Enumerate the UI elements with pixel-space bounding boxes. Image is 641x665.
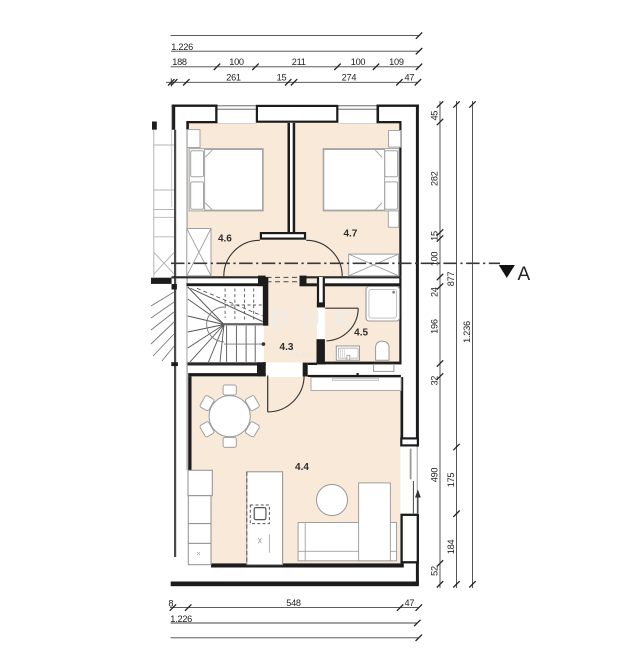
svg-text:1.226: 1.226 [170, 614, 192, 624]
svg-text:261: 261 [226, 72, 241, 82]
svg-text:175: 175 [446, 473, 456, 488]
svg-text:877: 877 [446, 271, 456, 286]
svg-text:184: 184 [446, 540, 456, 555]
svg-text:8: 8 [168, 599, 173, 609]
svg-text:100: 100 [229, 57, 244, 67]
svg-text:4.6: 4.6 [218, 233, 232, 244]
svg-text:52: 52 [430, 566, 440, 576]
svg-text:1.236: 1.236 [462, 321, 472, 343]
svg-text:100: 100 [430, 252, 440, 267]
svg-text:211: 211 [292, 57, 306, 67]
svg-text:274: 274 [342, 72, 357, 82]
svg-text:15: 15 [277, 72, 287, 82]
svg-text:4.7: 4.7 [343, 228, 357, 239]
svg-text:4.4: 4.4 [295, 462, 309, 473]
svg-text:47: 47 [405, 72, 415, 82]
svg-text:109: 109 [389, 57, 404, 67]
svg-text:47: 47 [405, 598, 415, 608]
svg-text:1.226: 1.226 [171, 42, 193, 52]
svg-text:24: 24 [430, 287, 440, 297]
svg-text:196: 196 [430, 319, 440, 334]
svg-text:4.3: 4.3 [280, 342, 294, 353]
svg-text:32: 32 [430, 376, 440, 386]
svg-text:282: 282 [430, 171, 440, 186]
svg-text:100: 100 [351, 57, 366, 67]
svg-text:188: 188 [172, 57, 187, 67]
svg-text:45: 45 [430, 111, 440, 121]
svg-text:4.5: 4.5 [354, 327, 368, 338]
svg-text:DUX: DUX [270, 306, 363, 334]
svg-text:490: 490 [430, 468, 440, 483]
svg-text:15: 15 [430, 231, 440, 241]
svg-text:A: A [518, 264, 531, 285]
svg-text:548: 548 [286, 598, 301, 608]
